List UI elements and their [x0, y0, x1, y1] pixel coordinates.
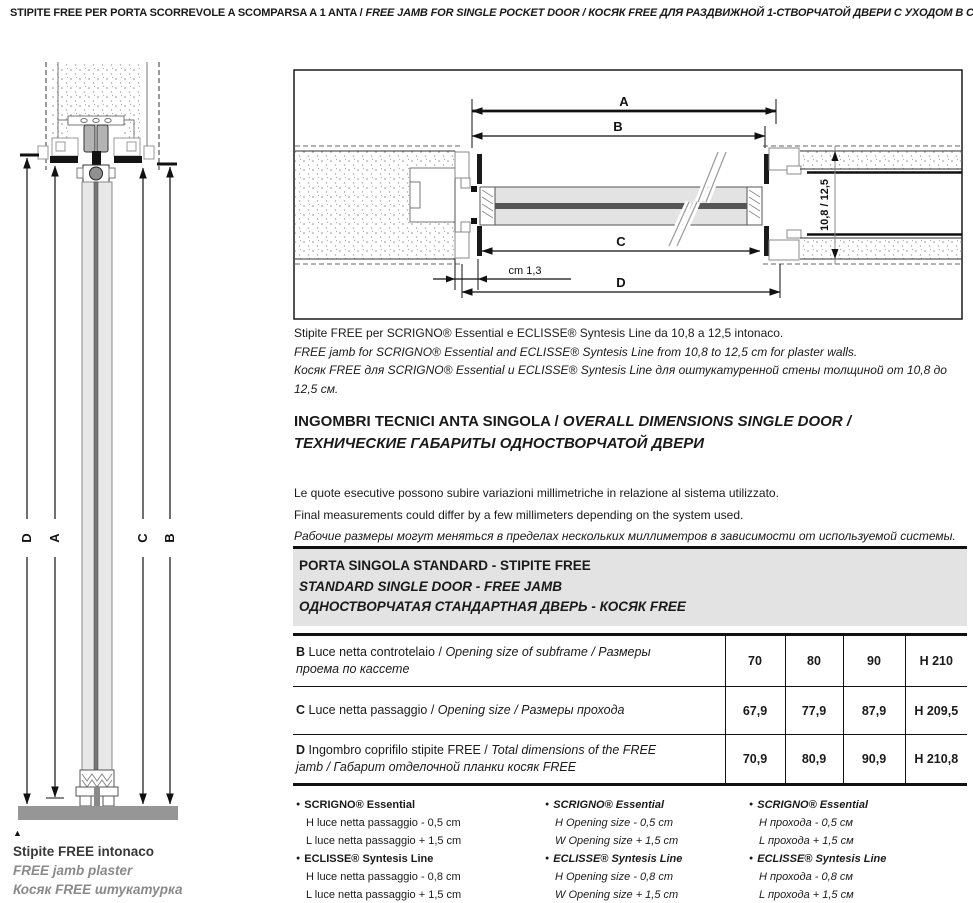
- left-figure-caption: ▲ Stipite FREE intonaco FREE jamb plaste…: [13, 828, 182, 899]
- bullet-icon: ●: [545, 855, 549, 862]
- pointer-up-icon: ▲: [13, 828, 182, 838]
- row-d-value-90: 90,9: [843, 735, 905, 785]
- dim-label-c: C: [135, 533, 150, 543]
- footnotes-en: ●SCRIGNO® Essential H Opening size - 0,5…: [545, 796, 780, 903]
- row-d-value-h: H 210,8: [905, 735, 967, 785]
- section-heading: INGOMBRI TECNICI ANTA SINGOLA / OVERALL …: [294, 411, 949, 454]
- bullet-icon: ●: [749, 855, 753, 862]
- figure-caption-ru: Косяк FREE для SCRIGNO® Essential и ECLI…: [294, 361, 964, 398]
- note-en: Final measurements could differ by a few…: [294, 505, 964, 527]
- table-row-c: C Luce netta passaggio / Opening size / …: [293, 687, 967, 735]
- band-title-it: PORTA SINGOLA STANDARD - STIPITE FREE: [299, 556, 961, 577]
- header-en: FREE JAMB FOR SINGLE POCKET DOOR: [366, 7, 580, 19]
- row-b-value-80: 80: [785, 635, 843, 687]
- door-hanger: [92, 151, 101, 166]
- left-caption-en: FREE jamb plaster: [13, 861, 182, 880]
- floor-guide: [76, 770, 118, 806]
- band-title-ru: ОДНОСТВОРЧАТАЯ СТАНДАРТНАЯ ДВЕРЬ - КОСЯК…: [299, 597, 961, 618]
- wall-thickness-label: 10,8 / 12,5: [819, 179, 831, 231]
- cm-label: cm 1,3: [508, 265, 541, 277]
- figure-caption: Stipite FREE per SCRIGNO® Essential e EC…: [294, 324, 964, 398]
- header-ru: КОСЯК FREE ДЛЯ РАЗДВИЖНОЙ 1-СТВОРЧАТОЙ Д…: [588, 7, 973, 19]
- table-title-band: PORTA SINGOLA STANDARD - STIPITE FREE ST…: [293, 546, 967, 626]
- bullet-icon: ●: [545, 801, 549, 808]
- floor: [18, 806, 178, 820]
- dim-label-b: B: [162, 533, 177, 542]
- row-c-value-90: 87,9: [843, 687, 905, 735]
- bullet-icon: ●: [296, 855, 300, 862]
- svg-text:C: C: [616, 234, 626, 249]
- row-c-label: C Luce netta passaggio / Opening size / …: [293, 687, 725, 735]
- svg-text:D: D: [616, 275, 625, 290]
- footnotes-ru: ●SCRIGNO® Essential H прохода - 0,5 см L…: [749, 796, 973, 903]
- footnote-title: ●SCRIGNO® Essential: [749, 796, 973, 814]
- row-b-label: B Luce netta controtelaio / Opening size…: [293, 635, 725, 687]
- door-slab: [480, 187, 762, 225]
- spec-table: B Luce netta controtelaio / Opening size…: [293, 633, 967, 786]
- bullet-icon: ●: [749, 801, 753, 808]
- page-header: STIPITE FREE PER PORTA SCORREVOLE A SCOM…: [10, 7, 968, 19]
- footnote-title: ●SCRIGNO® Essential: [296, 796, 531, 814]
- row-d-value-80: 80,9: [785, 735, 843, 785]
- row-c-value-70: 67,9: [725, 687, 785, 735]
- svg-text:B: B: [613, 119, 622, 134]
- footnote-title: ●ECLISSE® Syntesis Line: [296, 850, 531, 868]
- note-it: Le quote esecutive possono subire variaz…: [294, 483, 964, 505]
- door-panel: [82, 182, 112, 788]
- figure-caption-it: Stipite FREE per SCRIGNO® Essential e EC…: [294, 324, 964, 343]
- footnote-title: ●ECLISSE® Syntesis Line: [545, 850, 780, 868]
- table-row-b: B Luce netta controtelaio / Opening size…: [293, 635, 967, 687]
- header-it: STIPITE FREE PER PORTA SCORREVOLE A SCOM…: [10, 7, 357, 19]
- svg-text:A: A: [619, 94, 629, 109]
- footnotes-it: ●SCRIGNO® Essential H luce netta passagg…: [296, 796, 531, 903]
- notes: Le quote esecutive possono subire variaz…: [294, 483, 964, 548]
- row-b-value-90: 90: [843, 635, 905, 687]
- row-b-value-h: H 210: [905, 635, 967, 687]
- figure-caption-en: FREE jamb for SCRIGNO® Essential and ECL…: [294, 343, 964, 362]
- row-c-value-80: 77,9: [785, 687, 843, 735]
- left-caption-ru: Косяк FREE штукатурка: [13, 880, 182, 899]
- dim-label-d: D: [19, 533, 34, 542]
- row-c-value-h: H 209,5: [905, 687, 967, 735]
- note-ru: Рабочие размеры могут меняться в предела…: [294, 526, 964, 548]
- footnote-title: ●SCRIGNO® Essential: [545, 796, 780, 814]
- row-d-value-70: 70,9: [725, 735, 785, 785]
- left-caption-it: Stipite FREE intonaco: [13, 842, 182, 861]
- datasheet-page: STIPITE FREE PER PORTA SCORREVOLE A SCOM…: [0, 0, 973, 903]
- vertical-section-figure: D A C B: [6, 58, 186, 826]
- footnote-title: ●ECLISSE® Syntesis Line: [749, 850, 973, 868]
- bullet-icon: ●: [296, 801, 300, 808]
- plan-section-figure: 10,8 / 12,5 A B C cm 1,3: [293, 68, 963, 320]
- band-title-en: STANDARD SINGLE DOOR - FREE JAMB: [299, 577, 961, 598]
- row-d-label: D Ingombro coprifilo stipite FREE / Tota…: [293, 735, 725, 785]
- dim-label-a: A: [47, 533, 62, 543]
- row-b-value-70: 70: [725, 635, 785, 687]
- table-row-d: D Ingombro coprifilo stipite FREE / Tota…: [293, 735, 967, 785]
